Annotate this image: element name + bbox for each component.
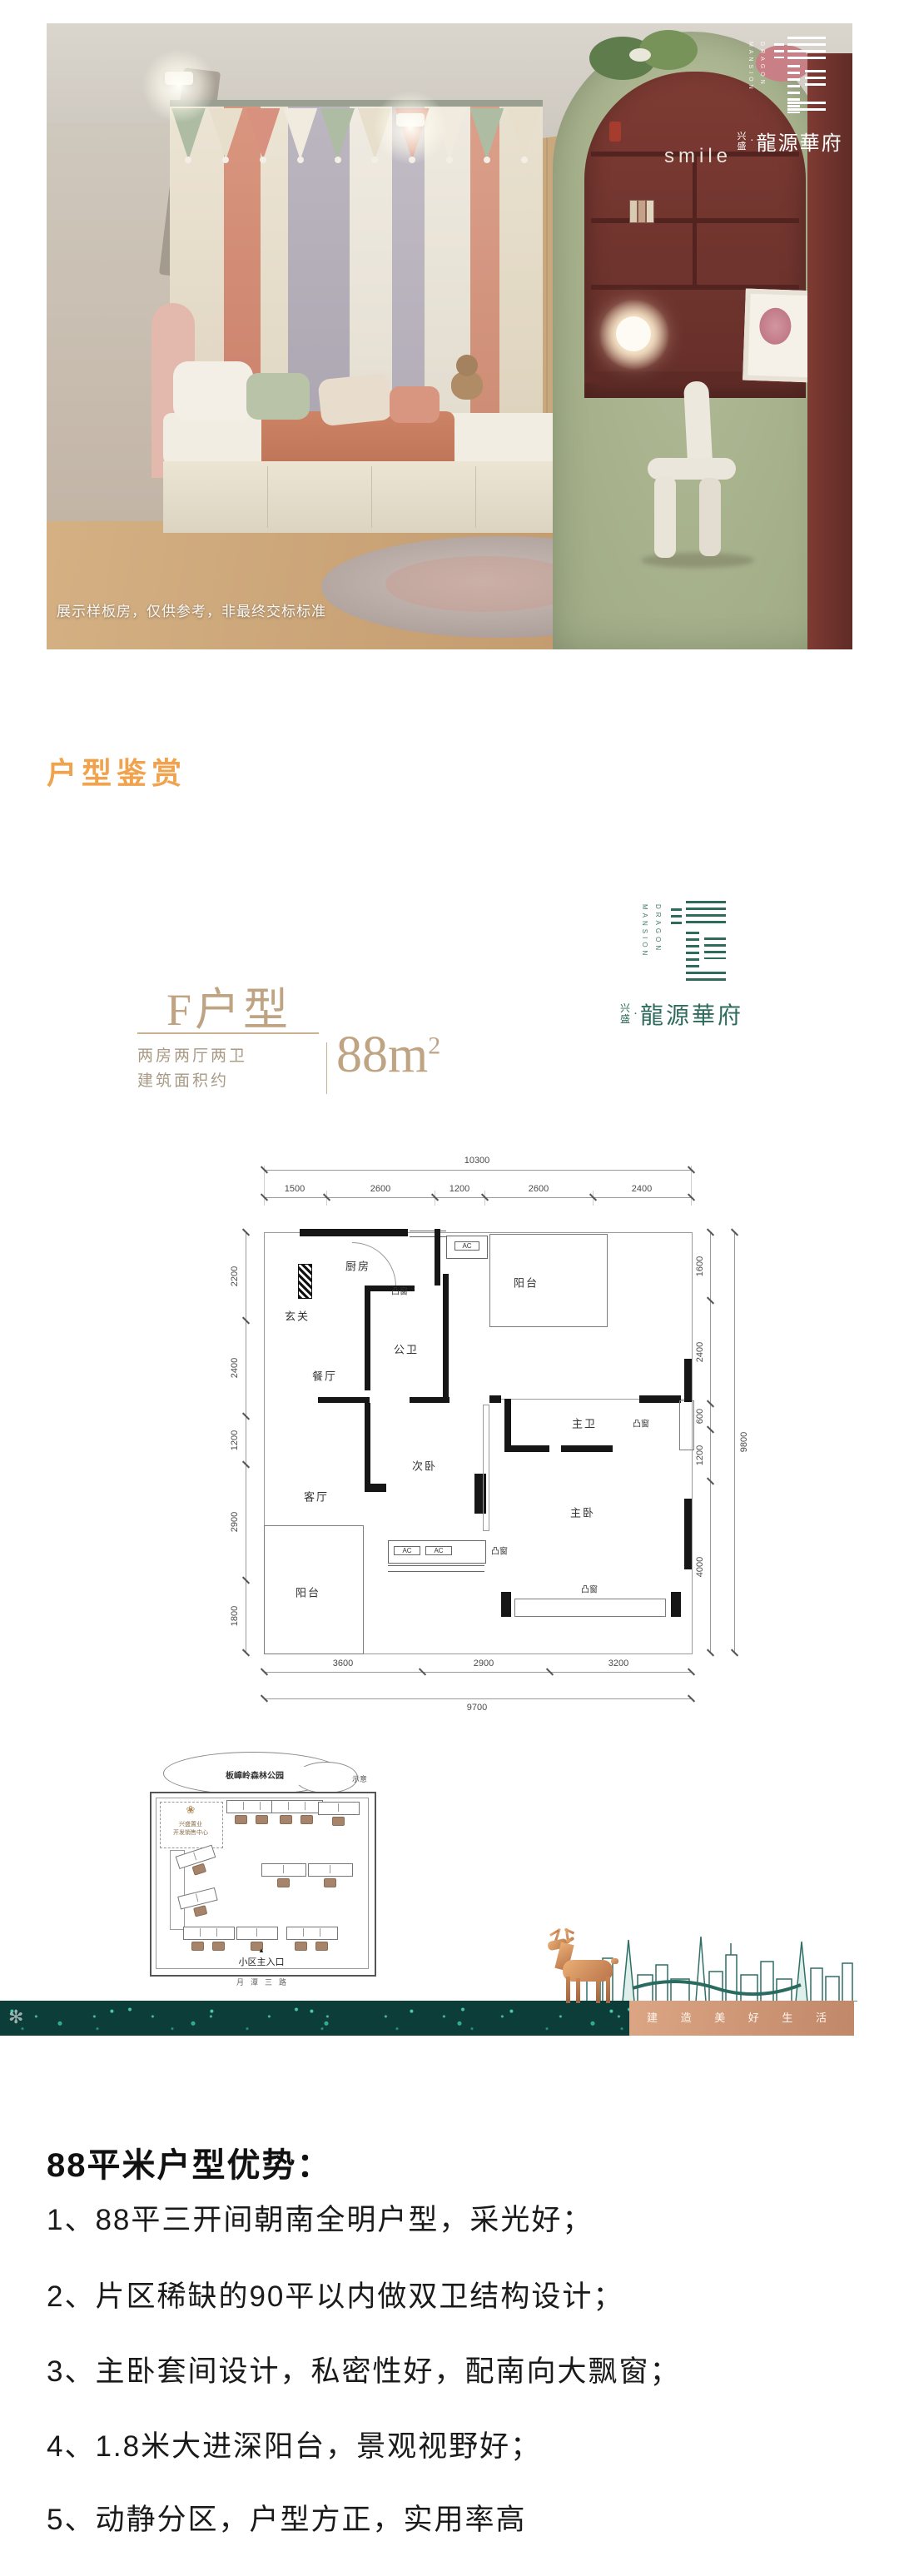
entry-wall (298, 1264, 312, 1299)
ac-platform-bottom: AC AC (388, 1540, 486, 1564)
unit-spec: 两房两厅两卫 建筑面积约 (137, 1044, 247, 1094)
room-dining: 餐厅 (312, 1368, 337, 1384)
page: smile DRAGON MANSION (0, 0, 899, 2576)
window-seat-base (163, 461, 579, 533)
building-cluster (271, 1800, 323, 1824)
brand-knot-icon: ❀ (186, 1803, 196, 1817)
pillow (246, 373, 310, 420)
section-title: 户型鉴赏 (47, 749, 186, 793)
banner: ✻ 建 造 美 好 生 活 (0, 1915, 899, 2040)
advantage-item: 3、主卧套间设计，私密性好，配南向大飘窗； (47, 2348, 871, 2390)
book (646, 200, 654, 223)
pillow (173, 361, 253, 421)
schematic-note: 示意 (352, 1773, 367, 1784)
slogan-strip: 建 造 美 好 生 活 (629, 2001, 854, 2036)
ac-platform: AC (446, 1236, 488, 1259)
vertical-divider (326, 1042, 327, 1094)
advantages-heading: 88平米户型优势： (47, 2138, 332, 2186)
deer-sculpture (533, 1928, 633, 2003)
chair-leg (699, 478, 721, 556)
advantage-item: 5、动静分区，户型方正，实用率高 (47, 2496, 871, 2539)
room-living: 客厅 (304, 1489, 329, 1504)
advantage-item: 1、88平三开间朝南全明户型，采光好； (47, 2196, 871, 2239)
building-cluster (308, 1863, 353, 1887)
advantage-item: 4、1.8米大进深阳台，景观视野好； (47, 2423, 871, 2465)
room-entry: 玄关 (285, 1308, 310, 1324)
watermark: 展示样板房，仅供参考，非最终交标标准 (57, 599, 326, 620)
bay-window-label: 凸窗 (391, 1285, 408, 1297)
pennant-valance (170, 108, 543, 167)
room-balcony-top: 阳台 (514, 1275, 539, 1290)
spotlight-glow (142, 48, 216, 123)
teddy-bear-head (456, 355, 478, 376)
bars-glyph-icon (774, 37, 826, 113)
floor-plan: 10300 1500 2600 1200 2600 2400 2200 2400… (225, 1149, 757, 1732)
room-bed-master: 主卧 (570, 1504, 595, 1520)
pillow (390, 386, 440, 423)
sales-office-line2: 开发销售中心 (173, 1828, 208, 1837)
bay-window-label: 凸窗 (633, 1417, 649, 1430)
picture-frame (743, 289, 817, 383)
room-bath-master: 主卫 (572, 1415, 597, 1431)
building-cluster (318, 1802, 360, 1826)
building-cluster (226, 1800, 278, 1824)
red-vase (609, 122, 621, 142)
sales-office-line1: 兴盛置业 (179, 1820, 202, 1828)
bay-window-label: 凸窗 (581, 1583, 598, 1595)
dim-bottom-total: 9700 (467, 1703, 487, 1713)
brand-logo-green: DRAGON MANSION 兴盛 · 龍源華府 (619, 901, 802, 1034)
room-balcony-bottom: 阳台 (296, 1584, 320, 1600)
advantage-item: 2、片区稀缺的90平以内做双卫结构设计； (47, 2273, 871, 2315)
unit-area: 88m2 (336, 1026, 440, 1085)
dim-right-total: 9800 (739, 1424, 749, 1460)
bars-glyph-icon (671, 901, 726, 984)
book (629, 200, 638, 223)
unit-name: F户型 (133, 972, 325, 1038)
dim-top-total: 10300 (464, 1156, 490, 1166)
room-bed-second: 次卧 (412, 1458, 437, 1474)
white-flowers (629, 48, 651, 62)
wardrobe-divider (483, 1405, 489, 1531)
divider-rule (137, 1032, 319, 1034)
room-bath-public: 公卫 (394, 1341, 419, 1357)
teal-glitter-strip (0, 2001, 629, 2036)
smile-decor-text: smile (664, 145, 732, 168)
brand-logo-white: DRAGON MANSION 兴盛 · 龍源華府 (736, 37, 849, 163)
bay-window-label: 凸窗 (491, 1544, 508, 1557)
spotlight-glow (373, 90, 448, 165)
bay-window-right (679, 1400, 694, 1450)
bay-window-bottom (514, 1599, 666, 1617)
book (638, 200, 646, 223)
snowflake-ornament-icon: ✻ (8, 2007, 23, 2028)
chair-leg (654, 476, 676, 558)
hero-photo: smile DRAGON MANSION (47, 23, 852, 649)
park-label: 板嶂岭森林公园 (226, 1768, 284, 1781)
balcony-top-wall (489, 1234, 608, 1327)
building-cluster (261, 1863, 306, 1887)
pillow (317, 373, 393, 427)
ball-lamp (616, 316, 651, 351)
room-kitchen: 厨房 (345, 1258, 370, 1274)
